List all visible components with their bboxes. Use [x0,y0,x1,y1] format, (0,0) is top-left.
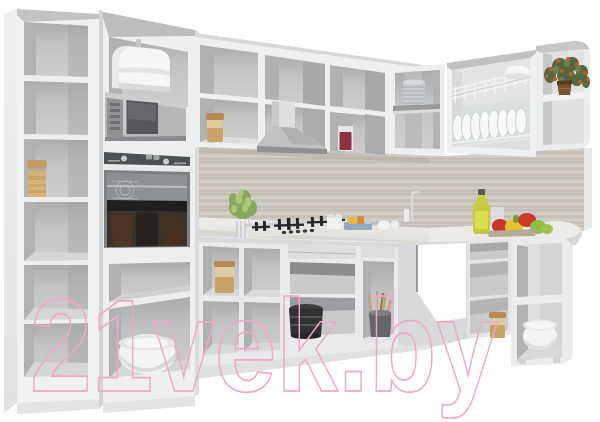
svg-text:21vek.by: 21vek.by [30,272,498,419]
